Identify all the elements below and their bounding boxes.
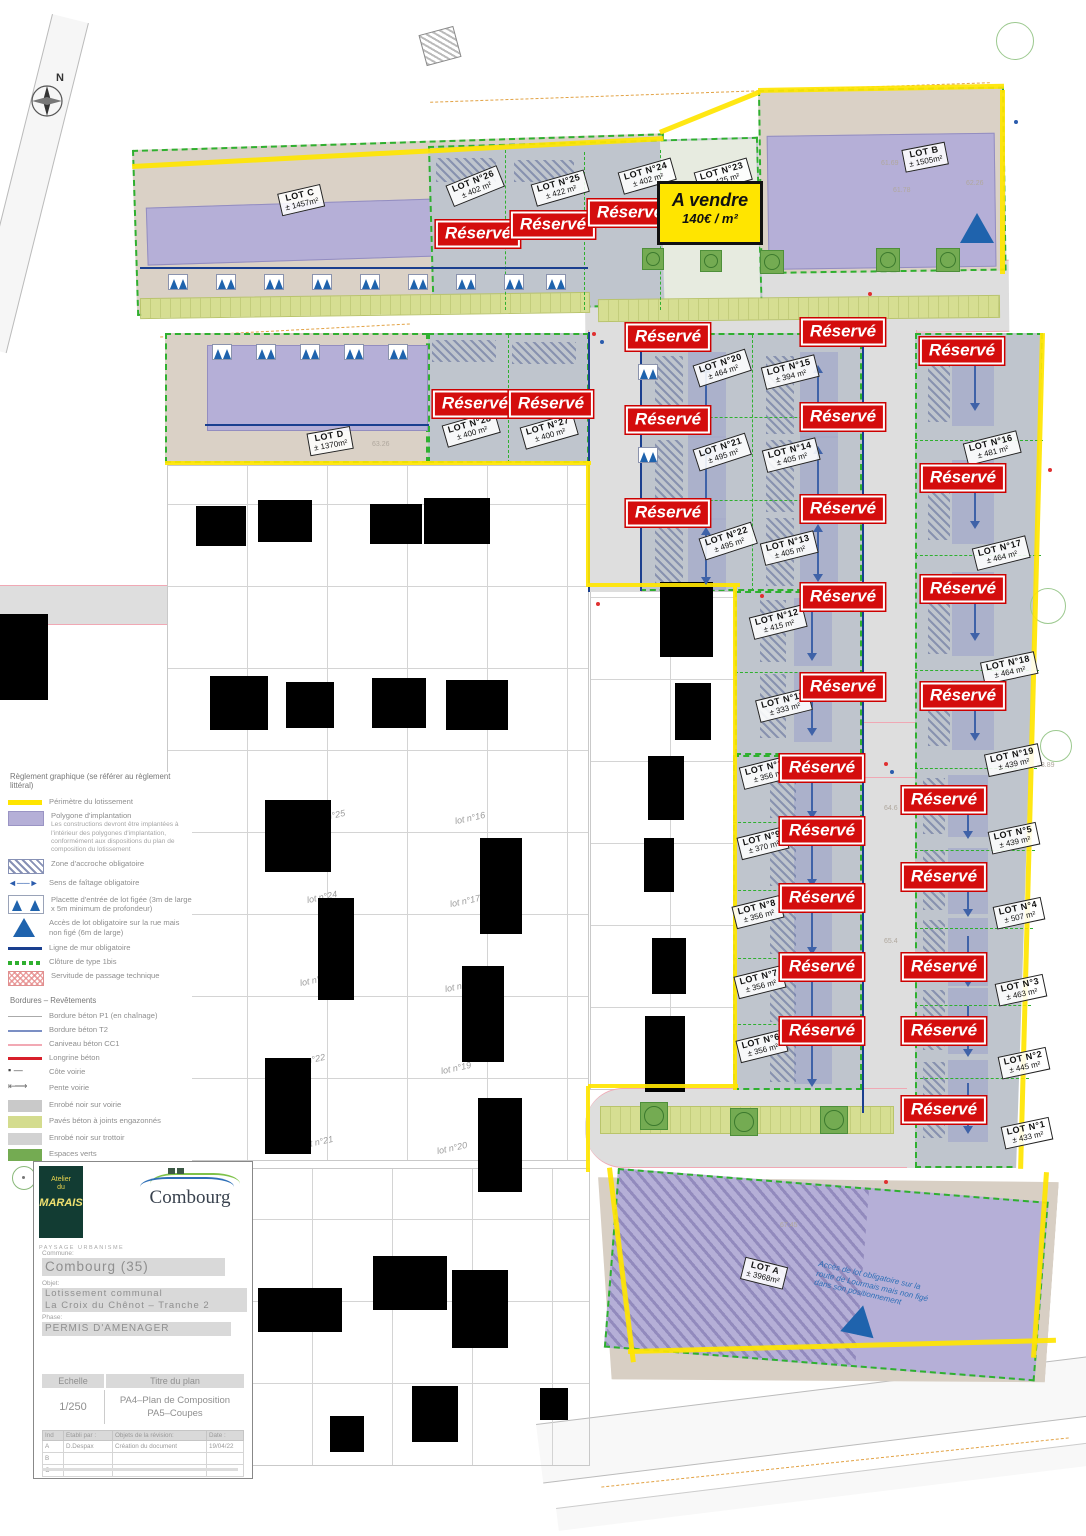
- objet-label: Objet:: [42, 1280, 59, 1287]
- triangle-icon: [649, 369, 657, 379]
- tree-icon: [1040, 730, 1072, 762]
- for-sale-price: 140€ / m²: [660, 211, 760, 226]
- reserved-badge: Réservé: [921, 465, 1005, 492]
- building-footprint: [644, 838, 674, 892]
- reserved-badge: Réservé: [511, 212, 595, 239]
- plan-title-value: PA4–Plan de Composition PA5–Coupes: [106, 1390, 244, 1424]
- reserved-badge: Réservé: [780, 755, 864, 782]
- accroche-hatch-zone: [655, 520, 683, 584]
- triangle-icon: [323, 279, 331, 289]
- triangle-icon: [218, 279, 226, 289]
- reserved-badge: Réservé: [626, 407, 710, 434]
- legend-item: Enrobé noir sur trottoir: [8, 1133, 192, 1145]
- building-footprint: [462, 966, 504, 1062]
- entry-placette-icon: [264, 274, 284, 290]
- building-footprint: [648, 756, 684, 820]
- entry-placette-icon: [360, 274, 380, 290]
- spot-elevation: 64.6: [884, 805, 898, 812]
- plot-divider-line: [140, 267, 588, 269]
- legend: Règlement graphique (se référer au règle…: [8, 772, 192, 1194]
- legend-label: Enrobé noir sur trottoir: [49, 1133, 125, 1142]
- legend-item: Bordure béton P1 (en chaînage): [8, 1011, 192, 1020]
- legend-swatch-icon: [8, 800, 42, 805]
- combourg-swoosh-icon: [140, 1170, 240, 1185]
- legend-label: Sens de faîtage obligatoire: [49, 878, 139, 887]
- survey-point: [884, 762, 888, 766]
- entry-placette-icon: [408, 274, 428, 290]
- entry-placette-icon: [300, 344, 320, 360]
- legend-swatch-icon: [8, 918, 42, 938]
- reserved-badge: Réservé: [902, 787, 986, 814]
- spot-elevation: 61.69: [881, 160, 899, 167]
- reserved-badge: Réservé: [801, 674, 885, 701]
- lot-access-triangle-icon: [960, 213, 994, 243]
- entry-placette-icon: [456, 274, 476, 290]
- reserved-badge: Réservé: [921, 576, 1005, 603]
- entry-placette-icon: [312, 274, 332, 290]
- legend-swatch-icon: [8, 1044, 42, 1047]
- triangle-icon: [311, 349, 319, 359]
- legend-item: Clôture de type 1bis: [8, 957, 192, 966]
- legend-label: Zone d'accroche obligatoire: [51, 859, 144, 868]
- legend-swatch-icon: [8, 878, 42, 890]
- reserved-badge: Réservé: [920, 338, 1004, 365]
- green-space: [876, 248, 900, 272]
- plot-divider-line: [752, 335, 753, 591]
- plot-divider-line: [205, 424, 429, 426]
- reserved-badge: Réservé: [780, 885, 864, 912]
- building-footprint: [370, 504, 422, 544]
- green-space: [936, 248, 960, 272]
- legend-swatch-icon: [8, 961, 42, 965]
- triangle-icon: [223, 349, 231, 359]
- revision-row: AD.Despax Création du document19/04/22: [43, 1441, 244, 1453]
- reserved-badge: Réservé: [626, 324, 710, 351]
- building-footprint: [196, 506, 246, 546]
- legend-label: Bordure béton P1 (en chaînage): [49, 1011, 158, 1020]
- triangle-icon: [640, 452, 648, 462]
- legend-swatch-icon: [8, 1016, 42, 1018]
- building-footprint: [652, 938, 686, 994]
- legend-item: Zone d'accroche obligatoire: [8, 859, 192, 874]
- parcel-grid: [167, 465, 589, 1161]
- spot-elevation: 62.26: [966, 180, 984, 187]
- green-space: [760, 250, 784, 274]
- combourg-logo: Combourg: [134, 1170, 246, 1209]
- reserved-badge: Réservé: [780, 1018, 864, 1045]
- reserved-badge: Réservé: [902, 1097, 986, 1124]
- legend-item: Enrobé noir sur voirie: [8, 1100, 192, 1112]
- fine-print: [42, 1468, 238, 1471]
- plot-divider-line: [862, 333, 864, 1113]
- building-footprint: [265, 800, 331, 872]
- plot-divider-line: [915, 1078, 1029, 1079]
- triangle-icon: [227, 279, 235, 289]
- legend-label: Pavés béton à joints engazonnés: [49, 1116, 161, 1125]
- legend-item: Périmètre du lotissement: [8, 797, 192, 806]
- triangle-icon: [302, 349, 310, 359]
- legend-label: Servitude de passage technique: [51, 971, 160, 980]
- legend-swatch-icon: [8, 1030, 42, 1032]
- survey-point: [600, 340, 604, 344]
- accroche-hatch-zone: [432, 340, 496, 362]
- entry-placette-icon: [638, 364, 658, 380]
- legend-swatch-icon: [8, 1133, 42, 1145]
- legend-label: Caniveau béton CC1: [49, 1039, 120, 1048]
- spot-elevation: 63.26: [372, 441, 390, 448]
- entry-placette-icon: [388, 344, 408, 360]
- survey-point: [596, 602, 600, 606]
- legend-item: Pente voirie: [8, 1083, 192, 1095]
- triangle-icon: [258, 349, 266, 359]
- commune-label: Commune:: [42, 1250, 74, 1257]
- legend-swatch-icon: [8, 947, 42, 950]
- legend-note: Les constructions devront être implantée…: [51, 821, 192, 854]
- perimeter-segment: [165, 461, 591, 465]
- green-space: [730, 1108, 758, 1136]
- building-footprint: [424, 498, 490, 544]
- legend-label: Polygone d'implantation: [51, 811, 131, 820]
- atelier-du-marais-logo: Atelier du MARAIS: [39, 1166, 83, 1238]
- legend-item: Longrine béton: [8, 1053, 192, 1062]
- perimeter-segment: [588, 583, 740, 587]
- for-sale-line1: A vendre: [660, 190, 760, 211]
- perimeter-segment: [586, 461, 590, 587]
- legend-item: Sens de faîtage obligatoire: [8, 878, 192, 890]
- revision-row: B: [43, 1453, 244, 1465]
- triangle-icon: [362, 279, 370, 289]
- plot-divider-line: [915, 928, 1033, 929]
- reserved-badge: Réservé: [801, 404, 885, 431]
- legend-swatch-icon: [8, 1116, 42, 1128]
- building-footprint: [265, 1058, 311, 1154]
- entry-placette-icon: [546, 274, 566, 290]
- reserved-badge: Réservé: [902, 954, 986, 981]
- reserved-badge: Réservé: [780, 954, 864, 981]
- triangle-icon: [640, 369, 648, 379]
- reserved-badge: Réservé: [626, 500, 710, 527]
- legend-swatch-icon: [8, 1083, 42, 1095]
- road-top-left: [0, 14, 89, 353]
- legend-item: Espaces verts: [8, 1149, 192, 1161]
- entry-placette-icon: [638, 447, 658, 463]
- triangle-icon: [267, 349, 275, 359]
- legend-swatch-icon: [8, 859, 44, 874]
- entry-placette-icon: [216, 274, 236, 290]
- triangle-icon: [214, 349, 222, 359]
- legend-label: Pente voirie: [49, 1083, 89, 1092]
- tree-icon: [996, 22, 1034, 60]
- green-space: [820, 1106, 848, 1134]
- reserved-badge: Réservé: [801, 584, 885, 611]
- legend-label: Périmètre du lotissement: [49, 797, 133, 806]
- north-compass: N: [30, 84, 64, 123]
- ridge-direction-arrow-icon: [811, 974, 813, 1018]
- north-label: N: [56, 72, 64, 84]
- triangle-icon: [399, 349, 407, 359]
- compass-icon: [30, 84, 64, 118]
- legend-swatch-icon: [8, 1057, 42, 1061]
- building-footprint: [660, 582, 713, 657]
- triangle-icon: [179, 279, 187, 289]
- ridge-direction-arrow-icon: [974, 360, 976, 404]
- triangle-icon: [410, 279, 418, 289]
- road-central: [588, 330, 642, 592]
- survey-point: [592, 332, 596, 336]
- building-footprint: [412, 1386, 458, 1442]
- triangle-icon: [170, 279, 178, 289]
- hatched-building: [418, 26, 461, 66]
- perimeter-segment: [588, 1084, 738, 1088]
- legend-item: Placette d'entrée de lot figée (3m de la…: [8, 895, 192, 914]
- legend-item: Ligne de mur obligatoire: [8, 943, 192, 952]
- green-space: [640, 1102, 668, 1130]
- phase-label: Phase:: [42, 1314, 62, 1321]
- spot-elevation: 61.78: [893, 187, 911, 194]
- triangle-icon: [266, 279, 274, 289]
- reserved-badge: Réservé: [509, 391, 593, 418]
- triangle-icon: [355, 349, 363, 359]
- survey-point: [1014, 120, 1018, 124]
- entry-placette-icon: [168, 274, 188, 290]
- entry-placette-icon: [212, 344, 232, 360]
- reserved-badge: Réservé: [436, 221, 520, 248]
- site-plan-sheet: N: [0, 0, 1086, 1536]
- triangle-icon: [557, 279, 565, 289]
- legend-label: Espaces verts: [49, 1149, 97, 1158]
- building-footprint: [478, 1098, 522, 1192]
- building-footprint: [675, 683, 711, 740]
- building-footprint: [373, 1256, 447, 1310]
- legend-label: Bordure béton T2: [49, 1025, 108, 1034]
- building-footprint: [258, 500, 312, 542]
- reserved-badge: Réservé: [801, 496, 885, 523]
- survey-point: [1048, 468, 1052, 472]
- perimeter-segment: [586, 1086, 590, 1172]
- triangle-icon: [458, 279, 466, 289]
- building-footprint: [480, 838, 522, 934]
- triangle-icon: [371, 279, 379, 289]
- legend-item: Servitude de passage technique: [8, 971, 192, 986]
- legend-swatch-icon: [8, 811, 44, 826]
- reserved-badge: Réservé: [902, 864, 986, 891]
- title-block: Atelier du MARAIS PAYSAGE URBANISME Comb…: [33, 1161, 253, 1479]
- plan-title-header: Titre du plan: [106, 1374, 244, 1388]
- building-footprint: [645, 1016, 685, 1092]
- triangle-icon: [275, 279, 283, 289]
- reserved-badge: Réservé: [902, 1018, 986, 1045]
- legend-title-2: Bordures – Revêtements: [10, 996, 192, 1005]
- spot-elevation: 67.45: [780, 1222, 798, 1229]
- building-footprint: [286, 682, 334, 728]
- scale-value: 1/250: [42, 1390, 105, 1424]
- legend-item: Côte voirie: [8, 1067, 192, 1079]
- legend-swatch-icon: [8, 1100, 42, 1112]
- green-space: [700, 250, 722, 272]
- reserved-badge: Réservé: [433, 391, 517, 418]
- legend-item: Bordure béton T2: [8, 1025, 192, 1034]
- survey-point: [868, 292, 872, 296]
- phase-value: PERMIS D'AMENAGER: [42, 1322, 231, 1336]
- combourg-logo-text: Combourg: [134, 1187, 246, 1209]
- building-footprint: [446, 680, 508, 730]
- legend-item: Polygone d'implantationLes constructions…: [8, 811, 192, 854]
- ridge-direction-arrow-icon: [811, 610, 813, 654]
- triangle-icon: [515, 279, 523, 289]
- building-footprint: [452, 1270, 508, 1348]
- green-space: [642, 248, 664, 270]
- perimeter-segment: [1000, 90, 1005, 274]
- paver-strip: [598, 295, 1000, 322]
- legend-swatch-icon: [8, 895, 44, 914]
- triangle-icon: [390, 349, 398, 359]
- objet-value: Lotissement communal La Croix du Chênot …: [42, 1288, 247, 1312]
- commune-value: Combourg (35): [42, 1258, 225, 1276]
- building-footprint: [258, 1288, 342, 1332]
- building-footprint: [318, 898, 354, 1000]
- accroche-hatch-zone: [512, 342, 576, 364]
- reserved-badge: Réservé: [921, 683, 1005, 710]
- triangle-icon: [506, 279, 514, 289]
- survey-point: [884, 1180, 888, 1184]
- survey-point: [890, 770, 894, 774]
- entry-placette-icon: [344, 344, 364, 360]
- for-sale-badge: A vendre 140€ / m²: [657, 181, 763, 245]
- legend-title: Règlement graphique (se référer au règle…: [10, 772, 192, 790]
- triangle-icon: [346, 349, 354, 359]
- triangle-icon: [419, 279, 427, 289]
- entry-placette-icon: [504, 274, 524, 290]
- legend-label: Enrobé noir sur voirie: [49, 1100, 121, 1109]
- reserved-badge: Réservé: [801, 319, 885, 346]
- building-footprint: [210, 676, 268, 730]
- legend-swatch-icon: [8, 1067, 42, 1079]
- triangle-icon: [467, 279, 475, 289]
- triangle-icon: [649, 452, 657, 462]
- legend-label: Longrine béton: [49, 1053, 100, 1062]
- legend-label: Accès de lot obligatoire sur la rue mais…: [49, 918, 179, 936]
- legend-label: Côte voirie: [49, 1067, 85, 1076]
- entry-placette-icon: [256, 344, 276, 360]
- legend-item: Pavés béton à joints engazonnés: [8, 1116, 192, 1128]
- legend-item: Accès de lot obligatoire sur la rue mais…: [8, 918, 192, 938]
- plot-divider-line: [915, 1005, 1031, 1006]
- building-footprint: [540, 1388, 568, 1420]
- houses-icon: [168, 1168, 175, 1174]
- building-footprint: [330, 1416, 364, 1452]
- legend-item: Caniveau béton CC1: [8, 1039, 192, 1048]
- plot-divider-line: [915, 850, 1035, 851]
- triangle-icon: [314, 279, 322, 289]
- spot-elevation: 65.4: [884, 938, 898, 945]
- scale-header: Echelle: [42, 1374, 104, 1388]
- legend-swatch-icon: [8, 1149, 42, 1161]
- triangle-icon: [548, 279, 556, 289]
- building-footprint: [372, 678, 426, 728]
- ridge-direction-arrow-icon: [817, 531, 819, 575]
- legend-swatch-icon: [8, 971, 44, 986]
- legend-label: Ligne de mur obligatoire: [49, 943, 130, 952]
- reserved-badge: Réservé: [780, 818, 864, 845]
- perimeter-segment: [659, 90, 761, 135]
- legend-label: Clôture de type 1bis: [49, 957, 117, 966]
- survey-point: [760, 594, 764, 598]
- legend-label: Placette d'entrée de lot figée (3m de la…: [51, 895, 192, 913]
- building-footprint: [0, 614, 48, 700]
